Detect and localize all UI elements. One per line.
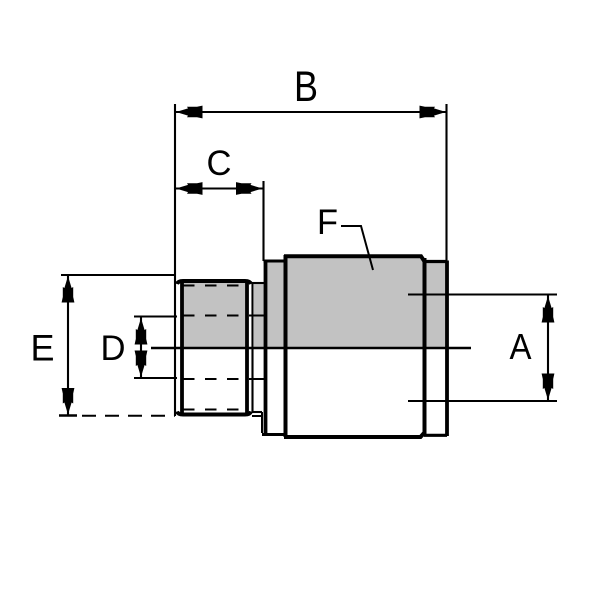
svg-text:D: D [101, 329, 126, 368]
svg-text:A: A [510, 326, 532, 367]
svg-text:F: F [317, 203, 338, 242]
svg-text:C: C [207, 144, 232, 183]
svg-text:B: B [294, 63, 318, 111]
svg-text:E: E [31, 328, 55, 369]
